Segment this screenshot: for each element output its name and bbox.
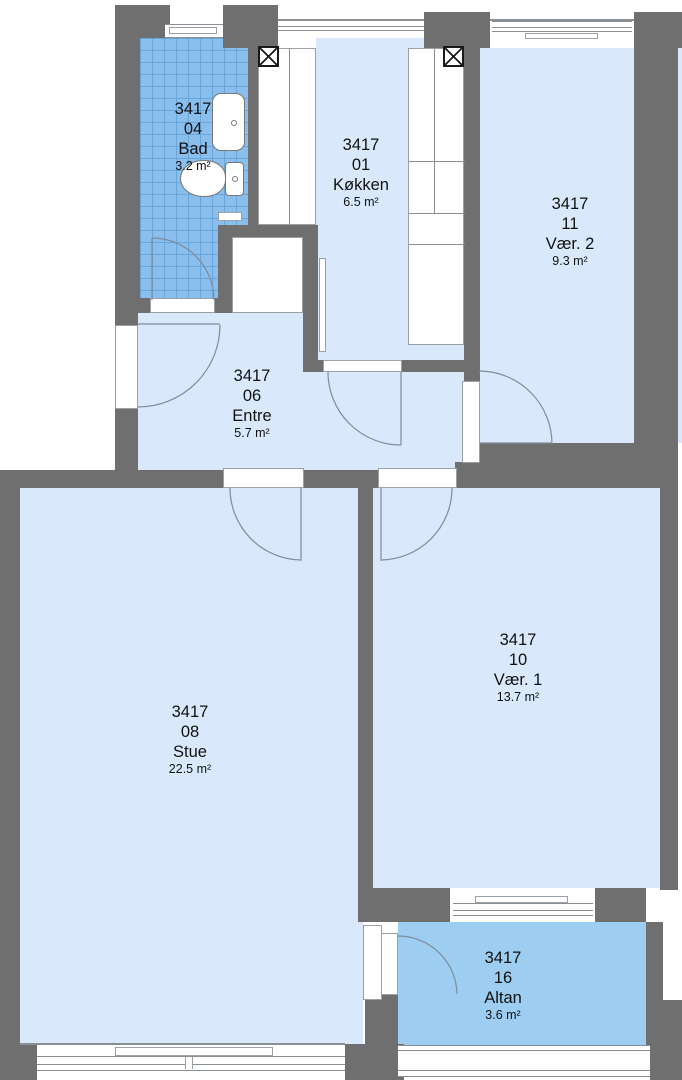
room2-radiator: [525, 33, 598, 39]
wall: [634, 12, 682, 48]
sink: [212, 93, 245, 151]
room1-door-frame: [378, 468, 457, 488]
wall: [345, 1044, 404, 1080]
wall: [303, 360, 325, 372]
kitchen-counter-left: [258, 48, 316, 225]
wall: [115, 407, 138, 470]
wall: [400, 360, 464, 372]
wall: [634, 48, 678, 448]
room-label-altan: 3417 16 Altan 3.6 m²: [484, 948, 522, 1023]
vent-shaft-icon: [443, 46, 464, 67]
kitchen-window: [278, 20, 424, 31]
wall: [595, 888, 646, 922]
room-label-bad: 3417 04 Bad 3.2 m²: [175, 99, 212, 174]
room1-radiator: [475, 896, 568, 903]
vent-shaft-icon: [258, 46, 279, 67]
room-label-stue: 3417 08 Stue 22.5 m²: [169, 702, 211, 777]
wall: [358, 888, 450, 922]
bathroom-window: [165, 24, 223, 38]
wall: [455, 462, 478, 488]
room2-door-frame: [462, 381, 480, 463]
wall: [215, 298, 232, 313]
wall: [218, 225, 318, 237]
wall: [0, 470, 225, 488]
wall: [650, 1000, 682, 1080]
bathroom-shelf: [218, 212, 242, 221]
room-label-entre: 3417 06 Entre 5.7 m²: [232, 366, 271, 441]
wall: [303, 237, 318, 372]
bathroom-door-frame: [150, 298, 215, 313]
wall: [478, 443, 678, 488]
wall: [660, 448, 678, 890]
balcony-floor: [398, 922, 646, 1045]
wall: [358, 488, 373, 888]
floor-plan: 3417 04 Bad 3.2 m² 3417 01 Køkken 6.5 m²…: [0, 0, 682, 1080]
room2-window: [492, 21, 632, 32]
livingroom-door-frame: [223, 468, 304, 488]
livingroom-wall-face-line: [20, 1043, 345, 1045]
wall: [0, 1044, 37, 1080]
balcony-door-leaf: [381, 933, 398, 995]
toilet-tank: [225, 162, 244, 196]
kitchen-door-frame: [323, 360, 402, 372]
neighbor-floor-sliver: [678, 48, 682, 443]
closet: [232, 237, 303, 313]
livingroom-radiator: [115, 1047, 273, 1056]
kitchen-radiator: [319, 258, 326, 352]
room-label-koekken: 3417 01 Køkken 6.5 m²: [333, 135, 389, 210]
balcony-door-frame: [363, 925, 382, 1000]
kitchen-counter-right: [408, 48, 464, 345]
entrance-door-frame: [115, 325, 138, 409]
wall: [302, 470, 380, 488]
wall: [365, 995, 398, 1044]
room1-balcony-window: [453, 903, 593, 916]
wall: [0, 488, 20, 1044]
livingroom-window: [37, 1056, 345, 1071]
room-label-vaer2: 3417 11 Vær. 2 9.3 m²: [546, 194, 595, 269]
wall: [115, 5, 140, 313]
wall: [115, 5, 170, 38]
wall: [424, 12, 490, 48]
balcony-railing: [398, 1045, 650, 1077]
room-label-vaer1: 3417 10 Vær. 1 13.7 m²: [494, 630, 543, 705]
